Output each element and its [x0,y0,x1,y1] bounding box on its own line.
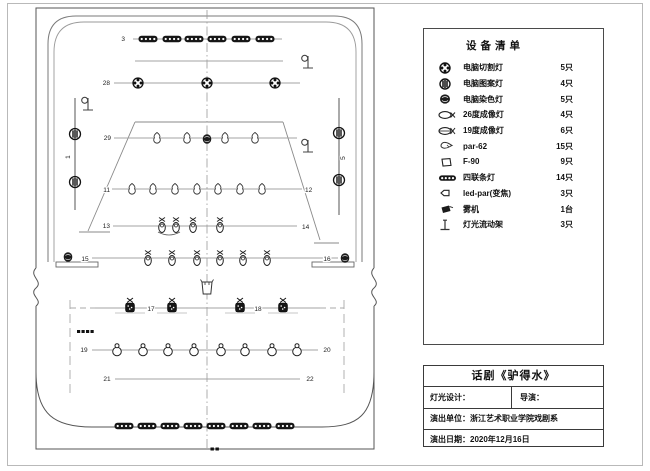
moving-wash-light-icon [203,134,212,144]
mini-strip-mark [77,330,94,333]
proscenium-ledge-right [312,262,354,267]
pipe-29: 29 [104,133,297,144]
legend-item-name: 四联条灯 [463,172,556,183]
profile-spot-icon [217,251,224,266]
legend-item-qty: 9只 [561,156,573,167]
pipe-15: 1516 [64,251,350,266]
par-62-icon [184,133,191,144]
legend-rows: 电脑切割灯5只电脑图案灯4只电脑染色灯5只26度成像灯4只19度成像灯6只par… [424,60,603,233]
moving-pattern-light-icon [70,177,81,188]
legend-item: 19度成像灯6只 [424,123,603,139]
lighting-plot-sheet: 3282911121314151617181920212215 设备清单 电脑切… [0,0,650,471]
performance-date: 演出日期：2020年12月16日 [424,430,603,449]
legend-item-qty: 4只 [561,78,573,89]
moving-cut-light-icon [270,78,280,88]
par-62-icon [215,184,222,195]
pipe-number-label: 12 [305,187,313,194]
f-90-icon [437,155,463,169]
par-62-icon [154,133,161,144]
break-symbol-right [366,268,382,306]
par-62-icon [237,184,244,195]
pipe-11: 1112 [103,184,312,195]
strip-bottom [115,423,295,429]
profile-spot-icon [217,218,224,233]
profile-spot-icon [240,251,247,266]
pipe-3: 3 [121,36,282,43]
strip-light-icon [437,171,463,185]
legend-item: F-909只 [424,154,603,170]
led-par-icon [268,298,298,313]
pipe-number-label: 14 [302,224,310,231]
legend-item-name: 电脑染色灯 [463,94,561,105]
f-90-icon [164,344,173,356]
profile-spot-icon [264,251,271,266]
legend-item: 四联条灯14只 [424,170,603,186]
lighting-design-label: 灯光设计： [424,387,512,408]
fog-machine-icon [201,280,214,295]
par-62-icon [172,184,179,195]
pipe-number-label: 16 [323,256,331,263]
pipe-number-label: 13 [103,223,111,230]
par-62-icon [194,184,201,195]
moving-wash-light-icon [64,252,73,262]
profile-spot-icon [159,218,166,233]
legend-item-name: F-90 [463,157,561,166]
legend-item-qty: 3只 [561,188,573,199]
moving-wash-light-icon [341,253,350,263]
light-stand-icon [437,218,463,232]
f-90-icon [190,344,199,356]
pipe-number-label: 28 [103,80,111,87]
pipe-number-label: 17 [147,306,155,313]
legend-item-name: 26度成像灯 [463,109,561,120]
par-62-icon [252,133,259,144]
pipe-number-label: 20 [323,347,331,354]
pipe-number-label: 22 [306,376,314,383]
pipe-number-label: 15 [81,256,89,263]
fog-machine-icon [437,202,463,216]
light-stand-icon [302,55,313,68]
legend-item-name: 电脑切割灯 [463,62,561,73]
f-90-icon [293,344,302,356]
pipe-13: 1314 [103,218,310,236]
f-90-icon [139,344,148,356]
par-62-icon [150,184,157,195]
break-symbol-left [28,268,44,306]
f-90-icon [217,344,226,356]
light-stand-icon [302,139,313,152]
legend-item-name: 电脑图案灯 [463,78,561,89]
profile-spot-icon [145,251,152,266]
pipe-number-label: 29 [104,135,112,142]
profile-26-icon [437,108,463,122]
f-90-icon [268,344,277,356]
legend-item: led-par(变焦)3只 [424,186,603,202]
legend-item-qty: 5只 [561,94,573,105]
par-62-icon [222,133,229,144]
performance-unit: 演出单位：浙江艺术职业学院戏剧系 [424,409,603,430]
legend-item-name: 19度成像灯 [463,125,561,136]
legend-item: 电脑图案灯4只 [424,76,603,92]
profile-spot-icon [194,251,201,266]
moving-pattern-light-icon [70,129,81,140]
legend-item-qty: 3只 [561,219,573,230]
side-boom-1: 1 [65,98,81,210]
pipe-number-label: 19 [80,347,88,354]
pipe-number-label: 11 [103,187,110,194]
legend-item: 灯光流动架3只 [424,217,603,233]
moving-cut-light-icon [133,78,143,88]
equipment-legend: 设备清单 电脑切割灯5只电脑图案灯4只电脑染色灯5只26度成像灯4只19度成像灯… [423,28,604,345]
bottom-wall [36,372,374,427]
pipe-28: 28 [103,78,300,88]
led-par-icon [225,298,255,313]
legend-item: 电脑染色灯5只 [424,91,603,107]
led-par-icon [115,298,145,313]
par-62-icon [437,139,463,153]
profile-spot-icon [190,218,197,233]
f-90-icon [241,344,250,356]
profile-19-icon [437,124,463,138]
par-62-icon [259,184,266,195]
legend-item: 电脑切割灯5只 [424,60,603,76]
moving-cut-light-icon [437,61,463,75]
moving-wash-light-icon [437,92,463,106]
profile-spot-icon [169,251,176,266]
legend-item-name: 雾机 [463,204,561,215]
legend-title: 设备清单 [466,38,603,53]
pipe-number-label: 21 [103,376,111,383]
legend-item-name: par-62 [463,142,556,151]
show-title: 话剧《驴得水》 [424,366,603,387]
row-17: 1718 [95,298,320,313]
moving-pattern-light-icon [334,128,345,139]
pipe-number-label: 3 [121,36,125,43]
title-block: 话剧《驴得水》 灯光设计： 导演： 演出单位：浙江艺术职业学院戏剧系 演出日期：… [423,365,604,447]
led-par-icon [157,298,187,313]
moving-cut-light-icon [202,78,212,88]
legend-item: 雾机1台 [424,201,603,217]
legend-item-name: led-par(变焦) [463,188,561,199]
moving-pattern-light-icon [437,77,463,91]
boom-number-label: 1 [65,155,72,159]
director-label: 导演： [512,387,603,408]
led-par-icon [437,186,463,200]
legend-item: 26度成像灯4只 [424,107,603,123]
legend-item-qty: 4只 [561,109,573,120]
row-19: 1920 [80,344,331,356]
legend-item: par-6215只 [424,138,603,154]
light-stand-icon [82,97,93,110]
legend-item-name: 灯光流动架 [463,219,561,230]
f-90-icon [113,344,122,356]
proscenium-ledge-left [56,262,98,267]
legend-item-qty: 1台 [561,204,573,215]
profile-spot-icon [173,218,180,233]
pipe-number-label: 18 [254,306,262,313]
par-62-icon [129,184,136,195]
legend-item-qty: 6只 [561,125,573,136]
legend-item-qty: 14只 [556,172,573,183]
side-boom-5: 5 [334,98,348,215]
legend-item-qty: 5只 [561,62,573,73]
plot-frame [36,8,374,449]
row-21: 2122 [103,376,314,383]
legend-item-qty: 15只 [556,141,573,152]
moving-pattern-light-icon [334,175,345,186]
boom-number-label: 5 [340,156,347,160]
